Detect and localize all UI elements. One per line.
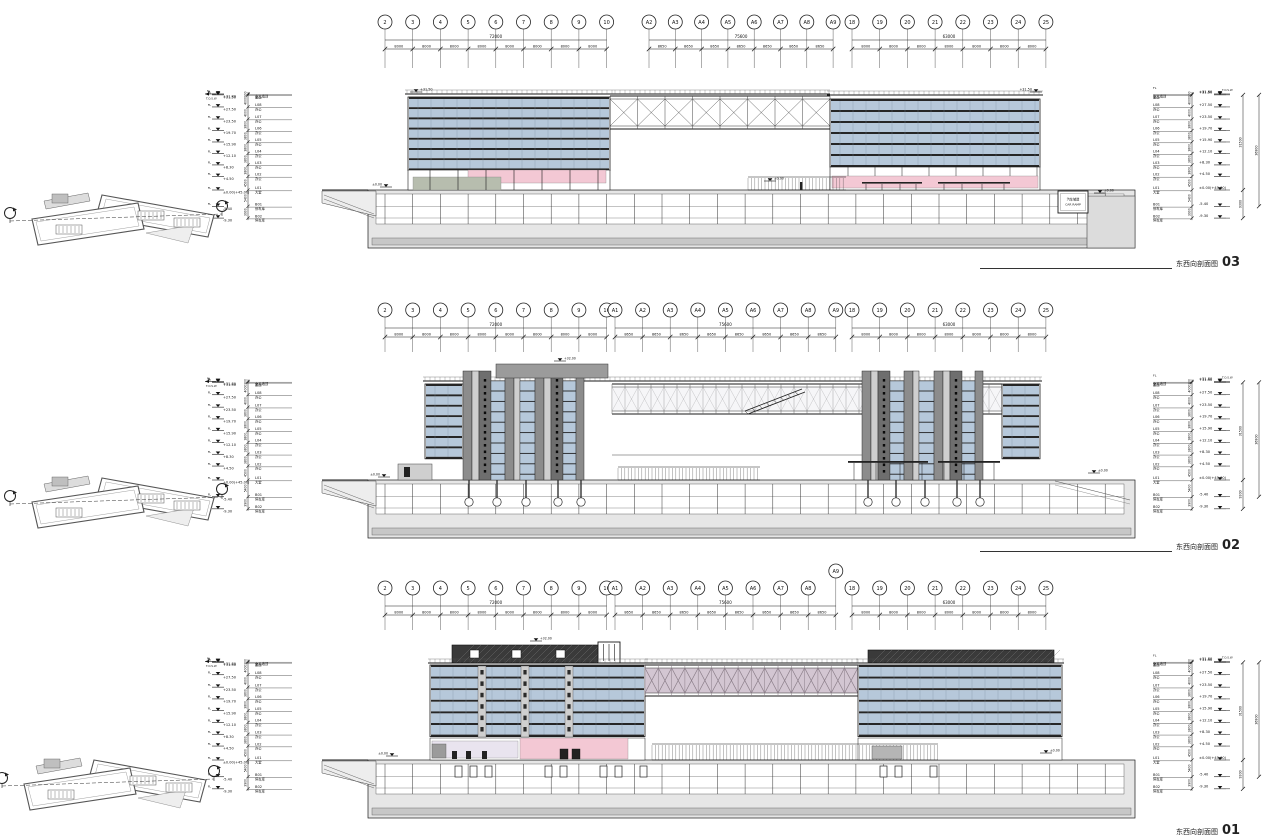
svg-text:FL: FL xyxy=(208,730,212,734)
svg-text:±0.00(+45.00): ±0.00(+45.00) xyxy=(1199,186,1227,190)
svg-text:75600: 75600 xyxy=(735,34,748,39)
svg-text:8000: 8000 xyxy=(1028,611,1037,615)
svg-text:办公: 办公 xyxy=(1153,394,1160,399)
svg-text:A7: A7 xyxy=(777,308,784,314)
svg-text:办公: 办公 xyxy=(255,165,262,170)
svg-text:4500: 4500 xyxy=(1188,749,1192,757)
svg-text:22: 22 xyxy=(960,20,966,26)
grid-row-01: 7200080008000800080008000800080008000234… xyxy=(378,564,1053,630)
svg-text:办公: 办公 xyxy=(1153,454,1160,459)
svg-text:B01: B01 xyxy=(255,203,262,207)
svg-text:办公: 办公 xyxy=(1153,466,1160,471)
svg-text:-5.40: -5.40 xyxy=(1199,493,1209,497)
svg-text:A5: A5 xyxy=(722,586,729,592)
svg-text:4500: 4500 xyxy=(1188,469,1192,477)
svg-text:4000: 4000 xyxy=(1188,677,1192,685)
svg-text:8000: 8000 xyxy=(1000,45,1009,49)
svg-text:8000: 8000 xyxy=(505,333,514,337)
svg-text:8000: 8000 xyxy=(561,333,570,337)
svg-text:5400: 5400 xyxy=(244,484,248,492)
svg-text:4000: 4000 xyxy=(244,677,248,685)
svg-text:9300: 9300 xyxy=(1239,200,1243,208)
svg-text:办公: 办公 xyxy=(255,107,262,112)
svg-text:办公: 办公 xyxy=(255,687,262,692)
section-02: 7200080008000800080008000800080008000234… xyxy=(5,303,1262,538)
svg-text:L01: L01 xyxy=(255,756,262,760)
sections-canvas: 7200080008000800080008000800080008000234… xyxy=(0,0,1274,835)
svg-text:L03: L03 xyxy=(1153,161,1160,165)
svg-text:±0.00(+45.00): ±0.00(+45.00) xyxy=(223,481,250,485)
svg-text:7: 7 xyxy=(522,308,525,314)
svg-text:+19.70: +19.70 xyxy=(223,420,236,424)
svg-text:3: 3 xyxy=(411,308,414,314)
svg-text:9300: 9300 xyxy=(1239,490,1243,498)
svg-text:办公: 办公 xyxy=(255,130,262,135)
svg-text:A4: A4 xyxy=(694,308,701,314)
svg-text:屋面: 屋面 xyxy=(255,382,262,387)
svg-text:FL: FL xyxy=(208,438,212,442)
svg-text:3800: 3800 xyxy=(1188,144,1192,152)
svg-text:25: 25 xyxy=(1043,308,1049,314)
svg-text:±0.00: ±0.00 xyxy=(378,752,388,756)
svg-text:3800: 3800 xyxy=(1188,736,1192,744)
svg-text:FL: FL xyxy=(208,115,212,119)
svg-text:停车库: 停车库 xyxy=(1153,206,1164,211)
svg-text:21: 21 xyxy=(932,586,938,592)
svg-text:8000: 8000 xyxy=(477,611,486,615)
svg-text:3900: 3900 xyxy=(244,208,248,216)
svg-text:L03: L03 xyxy=(255,161,262,165)
svg-text:8: 8 xyxy=(550,586,553,592)
svg-text:+4.50: +4.50 xyxy=(1199,462,1211,466)
svg-text:3800: 3800 xyxy=(244,444,248,452)
svg-text:75600: 75600 xyxy=(719,322,732,327)
svg-text:大堂: 大堂 xyxy=(1153,480,1160,485)
svg-text:L08: L08 xyxy=(1153,103,1160,107)
svg-text:FL: FL xyxy=(208,427,212,431)
svg-text:FL: FL xyxy=(208,695,212,699)
svg-text:+27.50: +27.50 xyxy=(223,675,236,679)
svg-text:+31.50: +31.50 xyxy=(223,95,236,99)
title-leader-line xyxy=(980,826,1172,835)
svg-text:36900: 36900 xyxy=(1255,434,1259,444)
svg-text:汽车坡道: 汽车坡道 xyxy=(1067,197,1081,202)
svg-text:5: 5 xyxy=(467,308,470,314)
svg-text:办公: 办公 xyxy=(255,466,262,471)
svg-text:FL: FL xyxy=(208,161,212,165)
svg-text:8000: 8000 xyxy=(944,611,953,615)
svg-text:B01: B01 xyxy=(1153,773,1160,777)
svg-text:8000: 8000 xyxy=(944,45,953,49)
svg-text:-9.30: -9.30 xyxy=(1199,785,1209,789)
svg-text:18: 18 xyxy=(849,20,855,26)
svg-text:L01: L01 xyxy=(1153,476,1160,480)
svg-text:2: 2 xyxy=(383,308,386,314)
svg-text:300: 300 xyxy=(244,91,248,97)
svg-text:-5.40: -5.40 xyxy=(1199,773,1209,777)
svg-text:3800: 3800 xyxy=(1188,155,1192,163)
svg-text:+31.50: +31.50 xyxy=(1199,91,1213,95)
svg-text:T.O.S.W: T.O.S.W xyxy=(1221,375,1233,379)
svg-text:9300: 9300 xyxy=(1239,770,1243,778)
svg-text:+31.50: +31.50 xyxy=(420,88,433,92)
svg-text:大堂: 大堂 xyxy=(1153,760,1160,765)
svg-text:8000: 8000 xyxy=(588,611,597,615)
svg-text:办公: 办公 xyxy=(1153,430,1160,435)
svg-text:8000: 8000 xyxy=(1028,45,1037,49)
svg-text:+4.50: +4.50 xyxy=(1199,742,1211,746)
svg-text:8650: 8650 xyxy=(789,45,798,49)
svg-text:8000: 8000 xyxy=(588,333,597,337)
svg-text:FL: FL xyxy=(208,785,212,789)
svg-text:4: 4 xyxy=(439,586,442,592)
svg-text:大堂: 大堂 xyxy=(255,190,262,195)
svg-text:+12.10: +12.10 xyxy=(223,443,236,447)
svg-text:+23.50: +23.50 xyxy=(223,120,236,124)
svg-text:8: 8 xyxy=(550,308,553,314)
svg-text:+19.70: +19.70 xyxy=(1199,126,1213,130)
svg-text:办公: 办公 xyxy=(255,746,262,751)
svg-text:3800: 3800 xyxy=(1188,444,1192,452)
svg-text:屋面: 屋面 xyxy=(255,662,262,667)
svg-text:A4: A4 xyxy=(694,586,701,592)
svg-text:L08: L08 xyxy=(255,391,262,395)
svg-text:屋面: 屋面 xyxy=(1153,94,1160,99)
svg-text:+23.50: +23.50 xyxy=(1199,115,1213,119)
svg-text:停车库: 停车库 xyxy=(255,496,266,501)
svg-text:FL: FL xyxy=(207,656,211,660)
building-03: +31.50+31.50汽车坡道CAR RAMP±0.00±0.00±0.00 xyxy=(322,88,1135,248)
svg-text:FL: FL xyxy=(208,186,212,190)
svg-text:±0.00(+45.00): ±0.00(+45.00) xyxy=(1199,476,1227,480)
title-text: 东西向剖面图 xyxy=(1176,828,1218,835)
svg-text:31500: 31500 xyxy=(1239,426,1243,436)
section-01: 7200080008000800080008000800080008000234… xyxy=(0,564,1261,818)
svg-text:T.O.S.W: T.O.S.W xyxy=(1221,655,1233,659)
svg-text:FL: FL xyxy=(208,742,212,746)
svg-text:L07: L07 xyxy=(1153,115,1160,119)
svg-text:办公: 办公 xyxy=(255,176,262,181)
svg-text:办公: 办公 xyxy=(255,454,262,459)
svg-text:FL: FL xyxy=(1153,373,1157,377)
svg-text:办公: 办公 xyxy=(1153,407,1160,412)
svg-text:办公: 办公 xyxy=(1153,107,1160,112)
svg-text:L07: L07 xyxy=(255,683,262,687)
svg-text:+31.50: +31.50 xyxy=(223,383,236,387)
svg-text:8650: 8650 xyxy=(680,333,689,337)
svg-text:+15.90: +15.90 xyxy=(1199,138,1213,142)
svg-text:FL: FL xyxy=(208,138,212,142)
svg-text:8000: 8000 xyxy=(533,333,542,337)
svg-text:A6: A6 xyxy=(751,20,758,26)
svg-text:T.O.S.W: T.O.S.W xyxy=(205,384,217,388)
svg-text:FL: FL xyxy=(1153,653,1157,657)
svg-text:+31.50: +31.50 xyxy=(223,663,236,667)
svg-text:L03: L03 xyxy=(255,450,262,454)
svg-text:办公: 办公 xyxy=(1153,176,1160,181)
svg-text:+19.70: +19.70 xyxy=(1199,415,1213,419)
svg-text:L07: L07 xyxy=(255,403,262,407)
svg-text:L04: L04 xyxy=(255,719,262,723)
svg-text:+27.50: +27.50 xyxy=(1199,391,1213,395)
svg-text:8650: 8650 xyxy=(790,611,799,615)
title-text: 东西向剖面图 xyxy=(1176,543,1218,552)
svg-text:L04: L04 xyxy=(1153,719,1160,723)
svg-text:20: 20 xyxy=(904,308,910,314)
svg-text:FL: FL xyxy=(207,376,211,380)
svg-text:T.O.S.W: T.O.S.W xyxy=(1221,88,1233,92)
svg-text:FL: FL xyxy=(1153,86,1157,90)
svg-text:A8: A8 xyxy=(805,308,812,314)
svg-text:8000: 8000 xyxy=(588,45,597,49)
svg-text:办公: 办公 xyxy=(255,419,262,424)
svg-text:3800: 3800 xyxy=(244,132,248,140)
svg-text:L02: L02 xyxy=(255,173,262,177)
svg-text:±0.00: ±0.00 xyxy=(370,473,380,477)
svg-text:25: 25 xyxy=(1043,20,1049,26)
svg-text:B01: B01 xyxy=(1153,203,1160,207)
svg-text:±0.00: ±0.00 xyxy=(774,177,784,181)
svg-text:A2: A2 xyxy=(639,586,646,592)
svg-text:±0.00(+45.00): ±0.00(+45.00) xyxy=(223,761,250,765)
svg-text:3900: 3900 xyxy=(244,779,248,787)
svg-text:停车库: 停车库 xyxy=(1153,218,1164,223)
svg-text:23: 23 xyxy=(987,308,993,314)
svg-text:3800: 3800 xyxy=(244,456,248,464)
building-01: +32.00±0.00±0.00 xyxy=(322,637,1135,818)
svg-text:办公: 办公 xyxy=(255,734,262,739)
key-plan xyxy=(5,476,230,528)
svg-text:3800: 3800 xyxy=(1188,409,1192,417)
svg-text:B02: B02 xyxy=(255,505,262,509)
svg-text:-9.30: -9.30 xyxy=(223,509,232,513)
svg-text:A9: A9 xyxy=(830,20,837,26)
key-plan xyxy=(5,193,230,245)
svg-text:5400: 5400 xyxy=(1188,484,1192,492)
svg-text:72000: 72000 xyxy=(489,322,502,327)
svg-text:8650: 8650 xyxy=(680,611,689,615)
svg-text:300: 300 xyxy=(1188,379,1192,385)
svg-text:8650: 8650 xyxy=(624,611,633,615)
svg-text:FL: FL xyxy=(208,683,212,687)
svg-text:A3: A3 xyxy=(667,308,674,314)
svg-text:+15.90: +15.90 xyxy=(1199,707,1213,711)
svg-text:B02: B02 xyxy=(255,214,262,218)
svg-text:4000: 4000 xyxy=(244,109,248,117)
svg-text:8000: 8000 xyxy=(861,333,870,337)
svg-text:+4.50: +4.50 xyxy=(223,177,234,181)
svg-text:A2: A2 xyxy=(646,20,653,26)
svg-text:FL: FL xyxy=(208,671,212,675)
svg-text:+8.30: +8.30 xyxy=(1199,450,1211,454)
svg-text:L08: L08 xyxy=(1153,391,1160,395)
svg-text:B02: B02 xyxy=(1153,214,1160,218)
svg-text:4500: 4500 xyxy=(244,749,248,757)
svg-text:办公: 办公 xyxy=(1153,746,1160,751)
section-title-01: 东西向剖面图 01 xyxy=(980,824,1240,835)
svg-text:+15.90: +15.90 xyxy=(223,143,236,147)
svg-text:8000: 8000 xyxy=(561,611,570,615)
svg-text:+32.00: +32.00 xyxy=(564,357,576,361)
svg-text:办公: 办公 xyxy=(1153,699,1160,704)
svg-text:63000: 63000 xyxy=(943,34,956,39)
svg-text:±0.00(+45.00): ±0.00(+45.00) xyxy=(223,191,250,195)
svg-text:L06: L06 xyxy=(255,127,262,131)
svg-text:4000: 4000 xyxy=(244,385,248,393)
svg-text:8650: 8650 xyxy=(624,333,633,337)
svg-text:8000: 8000 xyxy=(972,45,981,49)
svg-text:停车库: 停车库 xyxy=(1153,508,1164,513)
levels-right-01: 女儿墙顶+31.80300屋面+31.504000L08办公+27.504000… xyxy=(1153,653,1261,793)
svg-text:3800: 3800 xyxy=(1188,121,1192,129)
svg-text:停车库: 停车库 xyxy=(255,788,266,793)
svg-text:L07: L07 xyxy=(255,115,262,119)
svg-text:3800: 3800 xyxy=(244,167,248,175)
svg-text:+15.90: +15.90 xyxy=(223,431,236,435)
svg-text:36900: 36900 xyxy=(1255,714,1259,724)
svg-text:A8: A8 xyxy=(803,20,810,26)
svg-text:L02: L02 xyxy=(1153,742,1160,746)
svg-text:4: 4 xyxy=(439,20,442,26)
svg-text:B02: B02 xyxy=(255,785,262,789)
svg-text:3800: 3800 xyxy=(1188,132,1192,140)
svg-text:4000: 4000 xyxy=(244,397,248,405)
svg-text:办公: 办公 xyxy=(255,722,262,727)
svg-text:办公: 办公 xyxy=(1153,119,1160,124)
svg-text:+23.50: +23.50 xyxy=(1199,403,1213,407)
svg-text:8650: 8650 xyxy=(707,333,716,337)
svg-text:8650: 8650 xyxy=(815,45,824,49)
svg-text:3900: 3900 xyxy=(244,499,248,507)
svg-text:72000: 72000 xyxy=(489,34,502,39)
svg-text:A8: A8 xyxy=(805,586,812,592)
car-ramp-box: 汽车坡道CAR RAMP xyxy=(1058,191,1088,213)
svg-text:B01: B01 xyxy=(255,493,262,497)
svg-text:办公: 办公 xyxy=(1153,142,1160,147)
svg-text:8650: 8650 xyxy=(652,333,661,337)
svg-text:4000: 4000 xyxy=(1188,385,1192,393)
svg-text:办公: 办公 xyxy=(255,394,262,399)
svg-text:63000: 63000 xyxy=(943,600,956,605)
svg-text:±0.00: ±0.00 xyxy=(1098,469,1108,473)
svg-text:办公: 办公 xyxy=(255,710,262,715)
svg-text:大堂: 大堂 xyxy=(1153,190,1160,195)
svg-text:8000: 8000 xyxy=(917,611,926,615)
svg-text:8650: 8650 xyxy=(684,45,693,49)
svg-text:办公: 办公 xyxy=(255,119,262,124)
svg-text:72000: 72000 xyxy=(489,600,502,605)
svg-text:+15.90: +15.90 xyxy=(1199,427,1213,431)
svg-text:L06: L06 xyxy=(1153,415,1160,419)
svg-text:3800: 3800 xyxy=(1188,713,1192,721)
svg-text:3800: 3800 xyxy=(244,701,248,709)
svg-text:8650: 8650 xyxy=(652,611,661,615)
svg-text:A7: A7 xyxy=(777,20,784,26)
svg-text:FL: FL xyxy=(208,415,212,419)
svg-text:18: 18 xyxy=(849,308,855,314)
svg-text:大堂: 大堂 xyxy=(255,480,262,485)
svg-text:2: 2 xyxy=(383,20,386,26)
svg-text:A1: A1 xyxy=(612,308,619,314)
svg-text:8000: 8000 xyxy=(861,45,870,49)
svg-text:+8.30: +8.30 xyxy=(223,166,234,170)
svg-text:办公: 办公 xyxy=(255,674,262,679)
svg-text:+12.10: +12.10 xyxy=(1199,438,1213,442)
svg-text:21: 21 xyxy=(932,308,938,314)
svg-text:31500: 31500 xyxy=(1239,137,1243,147)
svg-text:B02: B02 xyxy=(1153,785,1160,789)
key-plan xyxy=(0,758,221,810)
svg-text:+27.50: +27.50 xyxy=(1199,103,1213,107)
svg-text:8: 8 xyxy=(550,20,553,26)
svg-text:+8.30: +8.30 xyxy=(223,735,234,739)
svg-text:3800: 3800 xyxy=(1188,167,1192,175)
svg-text:-5.40: -5.40 xyxy=(223,777,232,781)
svg-text:6: 6 xyxy=(494,308,497,314)
svg-text:FL: FL xyxy=(208,450,212,454)
svg-text:8000: 8000 xyxy=(394,333,403,337)
svg-text:+31.50: +31.50 xyxy=(1019,88,1032,92)
svg-text:8650: 8650 xyxy=(735,611,744,615)
grid-row-03: 7200080008000800080008000800080008000234… xyxy=(378,15,1053,68)
svg-text:8000: 8000 xyxy=(477,333,486,337)
svg-text:办公: 办公 xyxy=(1153,153,1160,158)
title-leader-line xyxy=(980,541,1172,552)
svg-text:3800: 3800 xyxy=(1188,433,1192,441)
svg-text:9: 9 xyxy=(577,586,580,592)
svg-text:36900: 36900 xyxy=(1255,146,1259,156)
svg-text:8650: 8650 xyxy=(762,333,771,337)
svg-text:A7: A7 xyxy=(777,586,784,592)
svg-text:21: 21 xyxy=(932,20,938,26)
svg-text:3800: 3800 xyxy=(244,433,248,441)
svg-text:办公: 办公 xyxy=(1153,130,1160,135)
svg-text:FL: FL xyxy=(208,756,212,760)
svg-text:+31.50: +31.50 xyxy=(1199,378,1213,382)
svg-text:8000: 8000 xyxy=(422,45,431,49)
svg-text:L06: L06 xyxy=(1153,127,1160,131)
svg-text:办公: 办公 xyxy=(1153,674,1160,679)
svg-text:FL: FL xyxy=(208,718,212,722)
svg-text:FL: FL xyxy=(208,403,212,407)
svg-text:20: 20 xyxy=(904,20,910,26)
section-03: 7200080008000800080008000800080008000234… xyxy=(5,15,1262,248)
svg-text:4000: 4000 xyxy=(244,665,248,673)
svg-text:L01: L01 xyxy=(1153,186,1160,190)
svg-text:8000: 8000 xyxy=(450,45,459,49)
svg-text:+27.50: +27.50 xyxy=(223,108,236,112)
levels-left-01: FL+31.80女儿墙顶300FL+31.50屋面4000FL+27.50L08… xyxy=(205,656,292,793)
svg-text:8000: 8000 xyxy=(861,611,870,615)
svg-text:8000: 8000 xyxy=(944,333,953,337)
svg-text:8650: 8650 xyxy=(735,333,744,337)
svg-text:8000: 8000 xyxy=(1000,333,1009,337)
svg-text:3800: 3800 xyxy=(244,689,248,697)
svg-text:20: 20 xyxy=(904,586,910,592)
svg-text:L08: L08 xyxy=(255,671,262,675)
svg-text:B01: B01 xyxy=(1153,493,1160,497)
drawing-sheet: 7200080008000800080008000800080008000234… xyxy=(0,0,1274,835)
svg-text:FL: FL xyxy=(208,462,212,466)
svg-text:FL: FL xyxy=(208,493,212,497)
svg-text:-5.40: -5.40 xyxy=(223,497,232,501)
svg-text:2: 2 xyxy=(383,586,386,592)
svg-text:300: 300 xyxy=(1188,659,1192,665)
svg-text:19: 19 xyxy=(877,308,883,314)
svg-text:办公: 办公 xyxy=(1153,734,1160,739)
svg-text:FL: FL xyxy=(208,126,212,130)
svg-text:3800: 3800 xyxy=(1188,689,1192,697)
